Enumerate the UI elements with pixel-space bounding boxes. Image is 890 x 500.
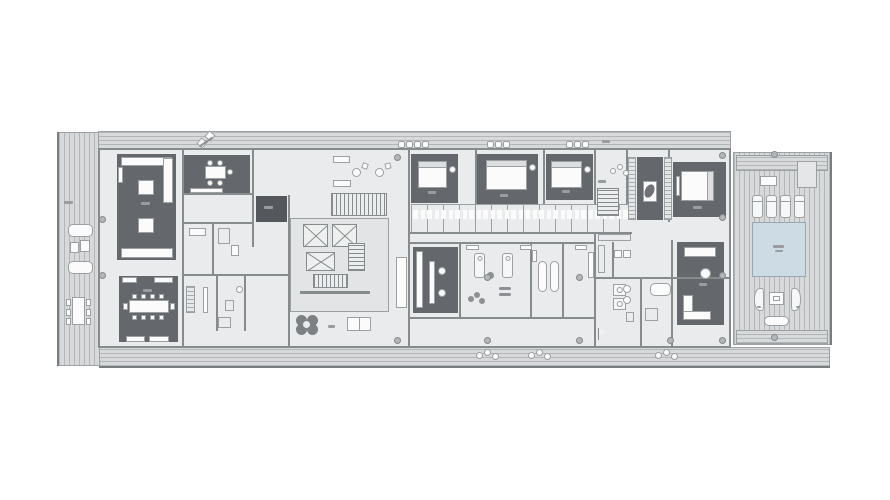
pot bbox=[617, 164, 623, 170]
wall bbox=[182, 274, 289, 276]
sitting-room-label-mark bbox=[699, 283, 707, 286]
planter-box bbox=[582, 141, 589, 148]
pool-deck-outer-edge bbox=[830, 152, 832, 345]
bed bbox=[551, 161, 582, 188]
closet-hatch bbox=[186, 286, 195, 313]
column bbox=[394, 154, 401, 161]
dining-chair bbox=[132, 294, 137, 299]
wall bbox=[252, 150, 254, 247]
dining-table bbox=[129, 300, 169, 313]
core-stair bbox=[313, 274, 348, 288]
vestibule-label-mark bbox=[264, 206, 273, 209]
flag-triangle bbox=[599, 328, 606, 336]
bedroom-label-mark bbox=[500, 194, 508, 197]
wall bbox=[671, 240, 673, 347]
service-stair bbox=[597, 188, 619, 216]
study-table bbox=[205, 166, 226, 179]
planter-box bbox=[495, 141, 502, 148]
elevator bbox=[306, 252, 335, 271]
gym-equipment bbox=[474, 292, 480, 298]
gallery-runner bbox=[396, 257, 407, 308]
cabinet bbox=[218, 228, 230, 244]
wall bbox=[562, 244, 564, 319]
credenza bbox=[126, 336, 145, 342]
basin bbox=[623, 285, 631, 293]
coffee-table bbox=[138, 218, 154, 233]
foyer-label-mark bbox=[328, 325, 335, 328]
planter-sculpture bbox=[295, 315, 319, 336]
wall bbox=[612, 242, 614, 279]
pool-label-mark bbox=[775, 250, 783, 252]
wardrobe bbox=[664, 157, 672, 220]
bedroom-chair bbox=[584, 166, 591, 173]
planter-box bbox=[487, 141, 494, 148]
wall bbox=[408, 317, 596, 319]
outdoor-side-table bbox=[80, 240, 90, 252]
shelf bbox=[588, 252, 594, 278]
pot bbox=[544, 353, 551, 360]
wall bbox=[184, 222, 252, 224]
console bbox=[333, 156, 350, 163]
sofa bbox=[683, 311, 711, 320]
pool-label-mark bbox=[773, 245, 784, 248]
kitchen-counter bbox=[598, 234, 631, 241]
foyer-table bbox=[347, 317, 371, 331]
coffee-table bbox=[138, 180, 154, 195]
appliance bbox=[623, 250, 631, 258]
bedroom-label-mark bbox=[562, 190, 570, 193]
column bbox=[771, 334, 778, 341]
dining-chair bbox=[123, 303, 128, 310]
column bbox=[484, 337, 491, 344]
wall bbox=[288, 195, 290, 347]
study-chair bbox=[217, 160, 223, 166]
lounger-headrest bbox=[767, 201, 776, 202]
wardrobe bbox=[628, 157, 636, 220]
dining-chair bbox=[159, 294, 164, 299]
study-chair bbox=[207, 160, 213, 166]
bed-pillow bbox=[487, 161, 526, 167]
lounger-headrest bbox=[795, 201, 804, 202]
planter-box bbox=[574, 141, 581, 148]
sofa bbox=[163, 158, 173, 203]
entry-sculpture bbox=[196, 130, 216, 150]
terrace-left-outer-edge bbox=[57, 132, 59, 366]
gym-equipment bbox=[468, 296, 474, 302]
pot bbox=[484, 349, 491, 356]
wall bbox=[410, 242, 596, 244]
pot bbox=[671, 353, 678, 360]
bed-bench bbox=[676, 176, 680, 196]
wall bbox=[594, 150, 596, 347]
lounger-headrest bbox=[781, 201, 790, 202]
glass-panel bbox=[797, 161, 817, 188]
column bbox=[667, 337, 674, 344]
pool-deck-bottom-band bbox=[736, 330, 828, 344]
gym-mat bbox=[575, 245, 587, 250]
column bbox=[394, 337, 401, 344]
dining-room-label-mark bbox=[143, 289, 152, 292]
terrace-left-deck bbox=[58, 132, 100, 366]
bed-pillow bbox=[419, 162, 446, 168]
hall-runner bbox=[203, 287, 208, 313]
planter-box bbox=[422, 141, 429, 148]
dining-chair bbox=[159, 315, 164, 320]
bedroom-chair bbox=[449, 166, 456, 173]
deck-bar bbox=[760, 176, 777, 186]
deck-label-mark bbox=[796, 306, 800, 308]
bed bbox=[418, 161, 447, 188]
planter-box bbox=[398, 141, 405, 148]
wall bbox=[596, 277, 731, 279]
planter-box bbox=[414, 141, 421, 148]
table-seam bbox=[359, 318, 360, 330]
massage-table bbox=[550, 261, 559, 292]
study-chair bbox=[207, 180, 213, 186]
dining-chair bbox=[132, 315, 137, 320]
column bbox=[719, 214, 726, 221]
treadmill bbox=[474, 253, 485, 278]
pot bbox=[610, 168, 616, 174]
dining-chair bbox=[141, 315, 146, 320]
dining-chair bbox=[141, 294, 146, 299]
salon-counter bbox=[416, 251, 423, 308]
dumbbell-rack bbox=[499, 287, 511, 290]
column bbox=[99, 272, 106, 279]
wall bbox=[459, 242, 461, 319]
armchair bbox=[352, 168, 361, 177]
basin bbox=[623, 296, 631, 304]
study-chair bbox=[217, 180, 223, 186]
salon-chair bbox=[438, 289, 446, 297]
console bbox=[333, 180, 351, 187]
basin bbox=[236, 286, 243, 293]
salon-chair bbox=[438, 267, 446, 275]
armchair bbox=[375, 168, 384, 177]
wc bbox=[626, 312, 634, 322]
dining-chair bbox=[170, 303, 175, 310]
master-bed bbox=[681, 171, 714, 201]
column bbox=[484, 274, 491, 281]
gym-mat bbox=[466, 245, 479, 250]
promenade-bottom bbox=[99, 347, 830, 367]
shelf bbox=[532, 250, 537, 262]
bathtub bbox=[650, 283, 671, 296]
pot bbox=[663, 349, 670, 356]
band-label-mark bbox=[602, 140, 610, 143]
outdoor-chair bbox=[66, 299, 71, 306]
daybed bbox=[189, 228, 206, 236]
dining-chair bbox=[150, 315, 155, 320]
credenza bbox=[149, 336, 169, 342]
planter-pots bbox=[655, 349, 679, 361]
bedroom-chair bbox=[529, 164, 536, 171]
shower bbox=[645, 308, 658, 321]
pot bbox=[492, 353, 499, 360]
elevator bbox=[303, 224, 328, 247]
treadmill-console bbox=[477, 256, 482, 261]
pool-lounger bbox=[766, 195, 777, 218]
lounger-headrest bbox=[753, 201, 762, 202]
column bbox=[99, 216, 106, 223]
study-credenza bbox=[190, 188, 223, 193]
column bbox=[719, 272, 726, 279]
promenade-bottom-edge bbox=[99, 366, 830, 368]
salon-island bbox=[429, 261, 435, 304]
gym-mat bbox=[520, 245, 532, 250]
credenza bbox=[122, 277, 137, 283]
bed bbox=[486, 160, 527, 190]
planter-boxes bbox=[398, 140, 432, 150]
core-stair bbox=[348, 243, 365, 271]
column bbox=[576, 337, 583, 344]
wall bbox=[212, 223, 214, 274]
deck-table bbox=[769, 292, 784, 305]
outdoor-loveseat bbox=[68, 224, 93, 237]
door-flag bbox=[598, 328, 606, 340]
gym-equipment bbox=[479, 298, 485, 304]
dumbbell-rack bbox=[499, 293, 511, 296]
wall bbox=[182, 150, 184, 347]
pot bbox=[655, 352, 662, 359]
column bbox=[719, 152, 726, 159]
bedroom-label-mark bbox=[428, 191, 436, 194]
outdoor-chair bbox=[86, 309, 91, 316]
planter-box bbox=[566, 141, 573, 148]
pool-lounger bbox=[780, 195, 791, 218]
column bbox=[576, 274, 583, 281]
wall bbox=[184, 193, 252, 195]
lounge-chair bbox=[700, 268, 711, 279]
bed-pillow bbox=[552, 162, 581, 168]
planter-box bbox=[503, 141, 510, 148]
column bbox=[771, 151, 778, 158]
wall bbox=[640, 277, 642, 346]
planter-pots bbox=[476, 349, 500, 361]
pot bbox=[528, 352, 535, 359]
outdoor-dining-table bbox=[72, 297, 85, 325]
outdoor-loveseat bbox=[68, 261, 93, 274]
shower bbox=[218, 317, 231, 328]
column bbox=[719, 337, 726, 344]
planter-boxes bbox=[487, 140, 513, 150]
pool-lounger bbox=[752, 195, 763, 218]
planter-pots bbox=[528, 349, 552, 361]
deck-label-mark bbox=[757, 306, 761, 308]
page-background bbox=[0, 0, 890, 500]
living-room-label-mark bbox=[141, 202, 150, 205]
bed-pillow bbox=[707, 172, 713, 200]
planter-boxes bbox=[566, 140, 592, 150]
outdoor-side-table bbox=[70, 242, 79, 253]
desk bbox=[231, 245, 239, 256]
deck-bench bbox=[764, 316, 789, 326]
core-wall-bar bbox=[300, 291, 370, 294]
pool-lounger bbox=[794, 195, 805, 218]
dining-chair bbox=[150, 294, 155, 299]
treadmill bbox=[502, 253, 513, 278]
terrace-label-mark bbox=[64, 201, 73, 204]
wall bbox=[244, 276, 246, 331]
treadmill-console bbox=[505, 256, 510, 261]
outdoor-chair bbox=[86, 318, 91, 325]
entry-vestibule bbox=[256, 196, 287, 222]
main-stair bbox=[331, 193, 387, 216]
outdoor-chair bbox=[66, 309, 71, 316]
appliance bbox=[614, 250, 622, 258]
master-bedroom-label-mark bbox=[693, 206, 702, 209]
massage-table bbox=[538, 261, 547, 292]
pot bbox=[476, 352, 483, 359]
study-chair bbox=[227, 169, 233, 175]
table-inner bbox=[773, 296, 780, 301]
sofa bbox=[121, 248, 173, 258]
service-label-mark bbox=[598, 180, 606, 183]
quatrefoil-center bbox=[303, 321, 310, 328]
outdoor-chair bbox=[66, 318, 71, 325]
machine-door bbox=[616, 301, 623, 307]
floor-plan bbox=[0, 0, 890, 500]
sofa bbox=[684, 247, 716, 257]
wc bbox=[225, 300, 234, 311]
planter-box bbox=[406, 141, 413, 148]
outdoor-chair bbox=[86, 299, 91, 306]
bench bbox=[118, 167, 123, 183]
machine-door bbox=[616, 287, 623, 293]
credenza bbox=[154, 277, 173, 283]
pot bbox=[536, 349, 543, 356]
kitchen-counter bbox=[598, 245, 605, 273]
